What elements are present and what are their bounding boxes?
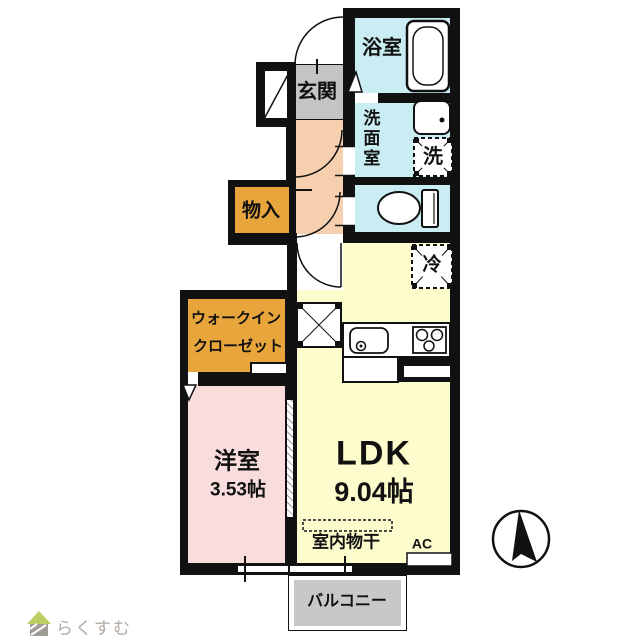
north-arrow-icon [493,510,549,567]
floorplan-canvas: 浴室 玄関 洗面室 洗 物入 冷 ウォークイン クローゼット 洋室 3.53帖 … [0,0,640,640]
ac-label: AC [412,536,432,551]
washer-label: 洗 [422,146,444,168]
bedroom-label: 洋室 [214,448,260,473]
washroom-label: 洗面室 [360,109,379,169]
storage-label: 物入 [242,202,280,223]
entrance-door-swing-arc [295,17,343,65]
ldk-label: LDK [336,435,412,472]
ldk-size-label: 9.04帖 [334,478,414,508]
house-icon [27,611,51,636]
kitchen-sink-icon [350,328,388,353]
indoor-drying-label: 室内物干 [312,534,380,553]
walk-in-closet-label-2: クローゼット [193,339,283,356]
entrance-label: 玄関 [297,81,337,103]
opening-marker [183,385,196,400]
logo-text: らくすむ [56,614,132,639]
kitchen-counter [343,323,450,382]
bath-label: 浴室 [362,37,402,59]
ac-unit [407,553,452,566]
entry-door-leaf [263,67,292,121]
washbasin-icon [414,101,450,134]
indoor-drying-rail [303,520,392,531]
walk-in-closet-label-1: ウォークイン [191,311,281,328]
storage-hatch-box [297,303,341,347]
stove-icon [413,327,446,353]
washroom-door-swing-arc [295,130,342,177]
fridge-label: 冷 [421,256,442,277]
folding-door-icon [348,72,362,92]
hall-door-swing-arc [295,192,340,237]
ldk-door-swing-arc [297,243,341,287]
bathtub-icon [407,21,449,91]
door-swing-arcs [263,17,355,287]
toilet-icon [378,190,438,227]
balcony-label: バルコニー [307,593,387,611]
bedroom-size-label: 3.53帖 [210,481,266,502]
